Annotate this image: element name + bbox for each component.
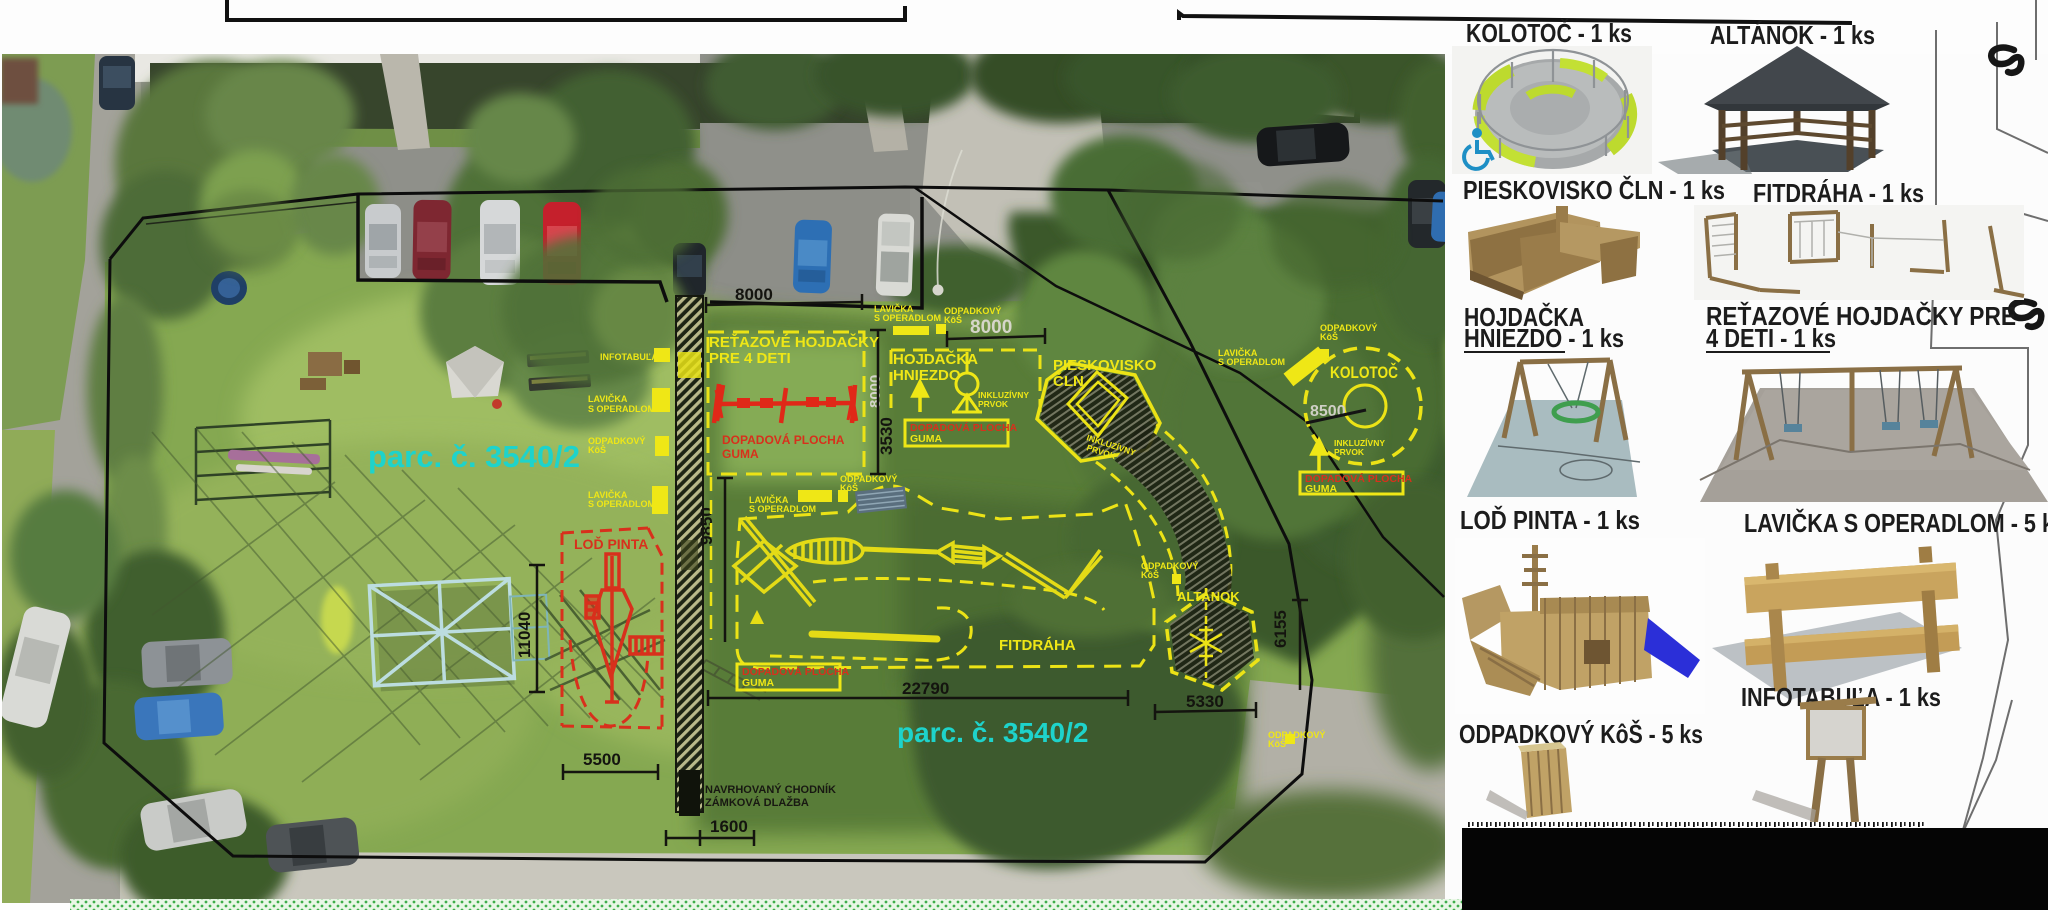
svg-text:ZÁMKOVÁ DLAŽBA: ZÁMKOVÁ DLAŽBA [705, 796, 809, 809]
svg-text:KOLOTOČ: KOLOTOČ [1330, 363, 1398, 382]
svg-text:PRE 4 DETI: PRE 4 DETI [709, 350, 791, 367]
svg-text:3530: 3530 [877, 417, 896, 455]
svg-text:PIESKOVISKO ČLN - 1 ks: PIESKOVISKO ČLN - 1 ks [1463, 175, 1725, 205]
svg-text:S OPERADLOM: S OPERADLOM [874, 313, 941, 323]
svg-text:9850: 9850 [697, 507, 716, 545]
svg-text:parc. č. 3540/2: parc. č. 3540/2 [897, 717, 1088, 748]
svg-text:REŤAZOVÉ HOJDAČKY: REŤAZOVÉ HOJDAČKY [709, 333, 879, 351]
svg-text:S OPERADLOM: S OPERADLOM [588, 499, 655, 509]
svg-text:INFOTABUĽA: INFOTABUĽA [600, 352, 658, 362]
svg-text:LOĎ PINTA: LOĎ PINTA [574, 535, 648, 552]
svg-text:KôŠ: KôŠ [1141, 569, 1159, 580]
svg-text:GUMA: GUMA [1305, 483, 1337, 495]
svg-text:FITDRÁHA: FITDRÁHA [999, 637, 1076, 654]
svg-text:KOLOTOČ - 1 ks: KOLOTOČ - 1 ks [1466, 18, 1632, 48]
svg-text:ALTÁNOK: ALTÁNOK [1177, 589, 1240, 604]
svg-text:ČLN: ČLN [1053, 372, 1084, 390]
svg-text:LAVIČKA S OPERADLOM - 5 ks: LAVIČKA S OPERADLOM - 5 ks [1744, 508, 2048, 538]
svg-text:LOĎ PINTA - 1 ks: LOĎ PINTA - 1 ks [1460, 505, 1640, 535]
svg-text:4 DETI - 1 ks: 4 DETI - 1 ks [1706, 323, 1836, 353]
svg-text:ODPADKOVÝ KôŠ - 5 ks: ODPADKOVÝ KôŠ - 5 ks [1459, 719, 1703, 749]
svg-text:GUMA: GUMA [910, 433, 942, 445]
svg-text:ALTÁNOK - 1 ks: ALTÁNOK - 1 ks [1710, 20, 1875, 50]
svg-text:HNIEZDO - 1 ks: HNIEZDO - 1 ks [1464, 323, 1624, 353]
svg-text:PRVOK: PRVOK [1334, 447, 1365, 457]
svg-text:S OPERADLOM: S OPERADLOM [588, 404, 655, 414]
svg-text:KôŠ: KôŠ [1268, 738, 1286, 749]
svg-text:PIESKOVISKO: PIESKOVISKO [1053, 357, 1157, 374]
svg-text:HOJDAČKA: HOJDAČKA [893, 350, 978, 368]
svg-text:NAVRHOVANÝ CHODNÍK: NAVRHOVANÝ CHODNÍK [705, 783, 836, 796]
svg-text:KôŠ: KôŠ [944, 314, 962, 325]
svg-text:LAVIČKA: LAVIČKA [588, 393, 628, 404]
svg-text:KôŠ: KôŠ [1320, 331, 1338, 342]
svg-text:5500: 5500 [583, 750, 621, 769]
svg-text:22790: 22790 [902, 679, 949, 698]
svg-text:5330: 5330 [1186, 692, 1224, 711]
svg-text:11040: 11040 [515, 612, 534, 658]
svg-text:8000: 8000 [970, 317, 1012, 338]
svg-text:1600: 1600 [710, 817, 748, 836]
svg-text:GUMA: GUMA [742, 677, 774, 689]
svg-text:GUMA: GUMA [722, 447, 759, 461]
svg-text:PRVOK: PRVOK [978, 399, 1009, 409]
svg-text:DOPADOVÁ PLOCHA: DOPADOVÁ PLOCHA [722, 432, 845, 447]
svg-text:KôŠ: KôŠ [588, 444, 606, 455]
svg-text:FITDRÁHA - 1 ks: FITDRÁHA - 1 ks [1753, 178, 1924, 208]
svg-text:8000: 8000 [735, 285, 773, 304]
svg-text:S OPERADLOM: S OPERADLOM [749, 504, 816, 514]
svg-text:6155: 6155 [1271, 610, 1290, 648]
svg-text:parc. č. 3540/2: parc. č. 3540/2 [368, 439, 580, 474]
svg-text:S OPERADLOM: S OPERADLOM [1218, 357, 1285, 367]
svg-text:HNIEZDO: HNIEZDO [893, 367, 961, 384]
svg-text:8000: 8000 [867, 375, 884, 408]
